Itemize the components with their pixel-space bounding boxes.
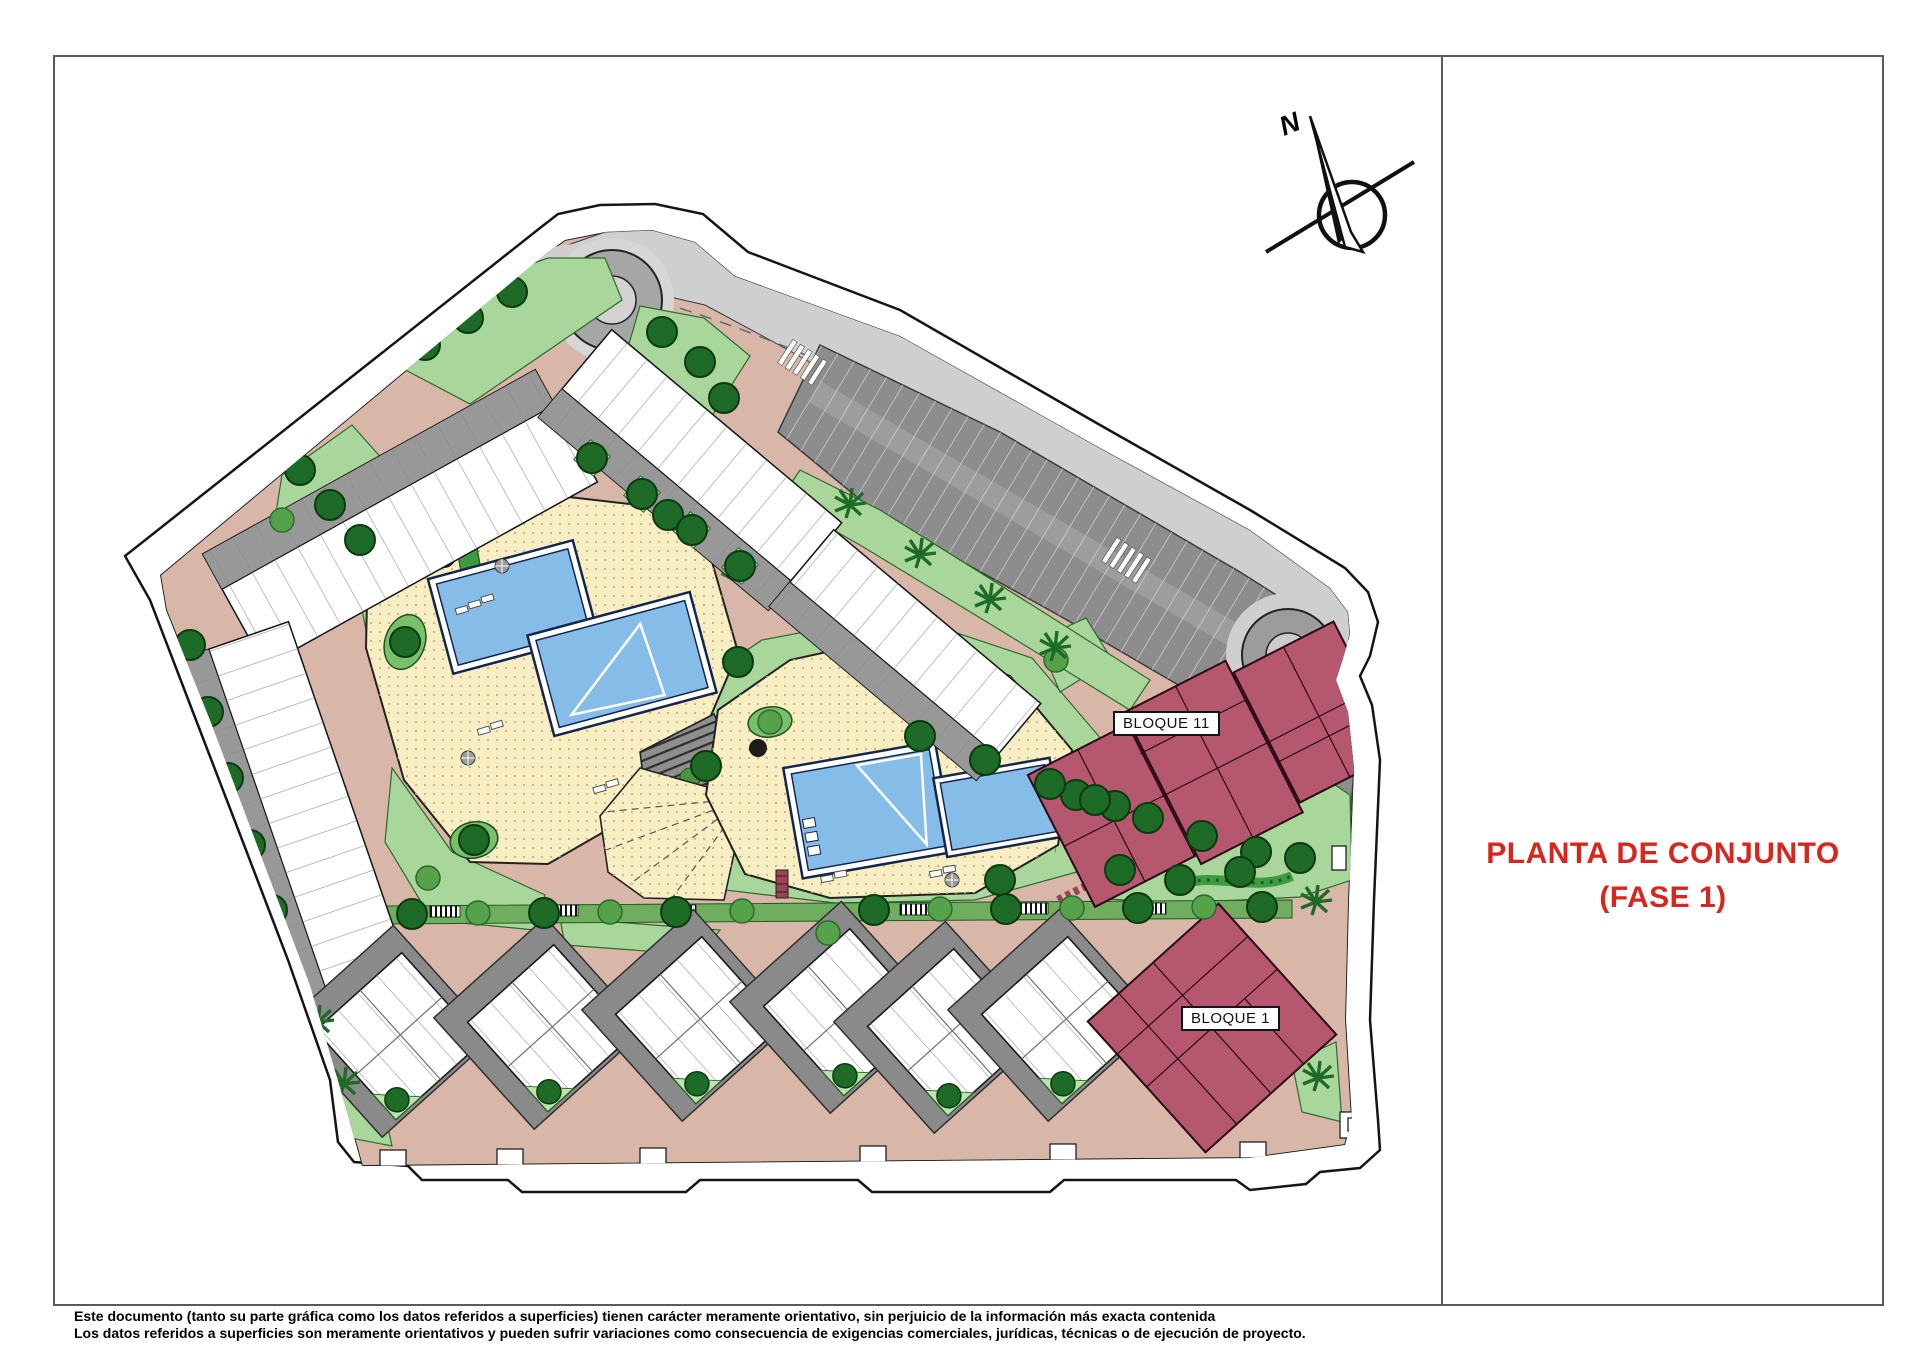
drawing-title-line2: (FASE 1) — [1445, 876, 1881, 920]
disclaimer-line2: Los datos referidos a superficies son me… — [74, 1325, 1306, 1342]
bloque-1-label: BLOQUE 1 — [1181, 1006, 1280, 1031]
disclaimer: Este documento (tanto su parte gráfica c… — [74, 1308, 1306, 1342]
bloque-11-label: BLOQUE 11 — [1113, 711, 1220, 736]
drawing-title: PLANTA DE CONJUNTO (FASE 1) — [1445, 832, 1881, 919]
drawing-title-line1: PLANTA DE CONJUNTO — [1445, 832, 1881, 876]
drawing-sheet: N BLOQUE 11 BLOQUE 1 PLANTA DE CONJUNTO … — [0, 0, 1920, 1357]
title-panel-divider — [1441, 55, 1443, 1304]
sheet-frame — [53, 55, 1884, 1306]
disclaimer-line1: Este documento (tanto su parte gráfica c… — [74, 1308, 1306, 1325]
